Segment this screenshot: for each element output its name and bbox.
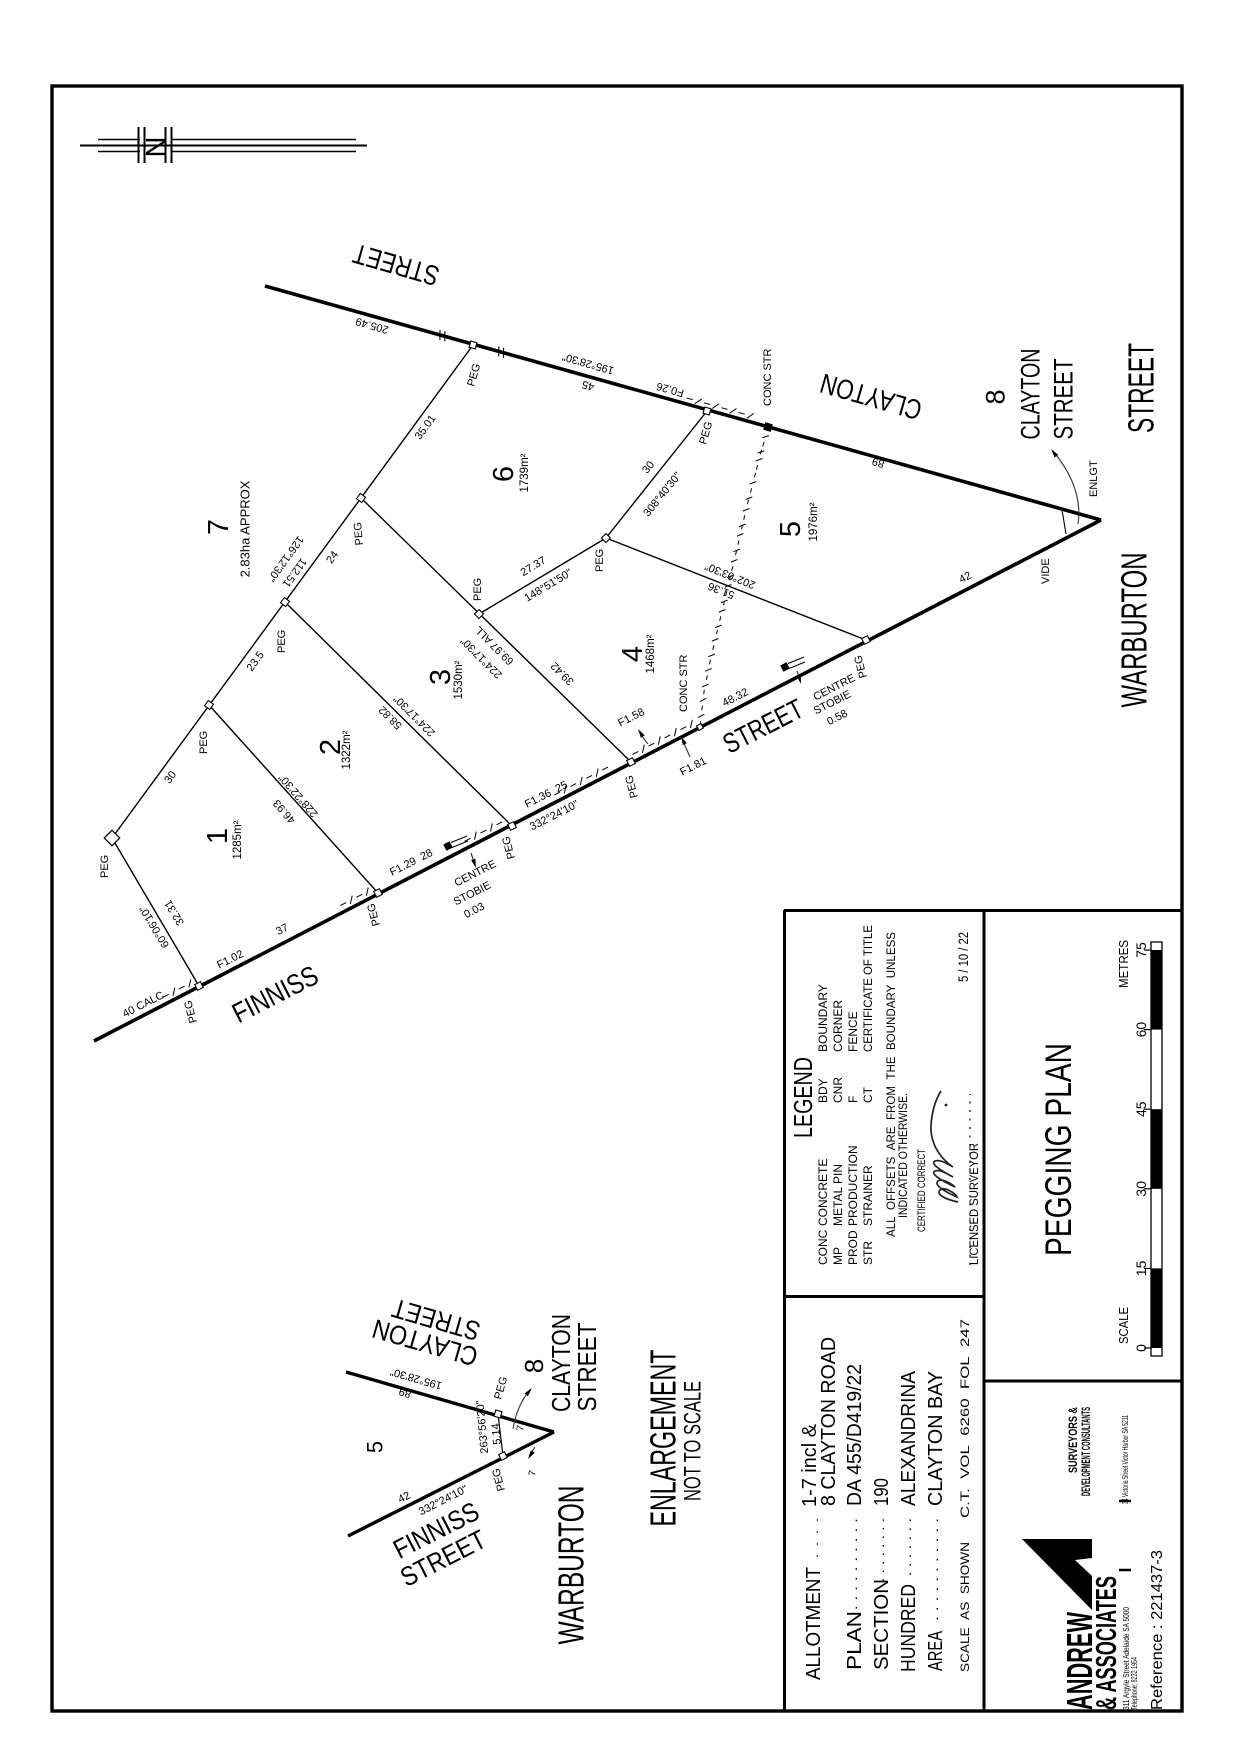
svg-text:30: 30 [1133, 1181, 1149, 1197]
svg-text:5: 5 [363, 1441, 388, 1453]
svg-text:37: 37 [274, 922, 290, 938]
svg-text:BDY: BDY [816, 1078, 830, 1103]
svg-text:ENLARGEMENT: ENLARGEMENT [643, 1349, 684, 1526]
svg-text:SURVEYORS &: SURVEYORS & [1066, 1407, 1080, 1473]
svg-text:1530m²: 1530m² [453, 660, 465, 699]
svg-text:DA 455/D419/22: DA 455/D419/22 [844, 1364, 866, 1506]
svg-text:CERTIFICATE OF TITLE: CERTIFICATE OF TITLE [861, 925, 875, 1052]
svg-text:STREET: STREET [350, 238, 443, 292]
svg-text:ALEXANDRINA: ALEXANDRINA [898, 1370, 920, 1506]
svg-text:BOUNDARY: BOUNDARY [816, 984, 830, 1052]
svg-text:NOT TO SCALE: NOT TO SCALE [679, 1381, 706, 1501]
svg-text:1468m²: 1468m² [645, 634, 657, 673]
svg-text:PEG: PEG [465, 362, 483, 388]
svg-text:15: 15 [1133, 1260, 1149, 1276]
svg-text:. . . .: . . . . [806, 1518, 821, 1558]
svg-text:STREET: STREET [572, 1322, 602, 1411]
svg-text:SCALE AS SHOWN: SCALE AS SHOWN [958, 1542, 972, 1672]
svg-text:. . . . . . . . . . .: . . . . . . . . . . . [845, 1518, 860, 1620]
svg-text:PEG: PEG [852, 654, 870, 680]
svg-text:PEG: PEG [365, 902, 383, 928]
svg-text:39.42: 39.42 [549, 659, 577, 687]
svg-text:STREET: STREET [1121, 343, 1162, 433]
svg-text:6: 6 [488, 466, 520, 482]
svg-text:CORNER: CORNER [831, 1000, 845, 1052]
svg-text:5.14: 5.14 [490, 1423, 504, 1445]
svg-text:CT: CT [861, 1086, 875, 1103]
svg-text:WARBURTON: WARBURTON [1114, 553, 1155, 708]
svg-text:8 CLAYTON ROAD: 8 CLAYTON ROAD [818, 1337, 840, 1506]
svg-text:F1.29 28: F1.29 28 [388, 847, 435, 879]
svg-text:75: 75 [1133, 942, 1149, 958]
svg-text:224°17'30": 224°17'30" [392, 692, 438, 738]
svg-text:30: 30 [162, 769, 179, 786]
svg-text:VIDE: VIDE [1040, 558, 1052, 584]
svg-text:5 / 10 / 22: 5 / 10 / 22 [955, 932, 971, 982]
svg-text:. . . . . . . . . . .: . . . . . . . . . . . [926, 1518, 941, 1621]
svg-text:FINNISS: FINNISS [227, 960, 323, 1029]
svg-text:PEG: PEG [594, 549, 606, 572]
svg-text:F1.58: F1.58 [616, 706, 647, 729]
svg-text:. . . . . . . .: . . . . . . . . [872, 1518, 887, 1582]
svg-text:8: 8 [980, 389, 1010, 404]
svg-text:263°56'20": 263°56'20" [474, 1400, 491, 1454]
svg-text:SECTION: SECTION [871, 1579, 893, 1670]
svg-text:1322m²: 1322m² [341, 730, 353, 769]
svg-text:METRES: METRES [1116, 940, 1131, 988]
svg-text:. . . . . . .: . . . . . . . [899, 1518, 914, 1576]
svg-text:DEVELOPMENT CONSULTANTS: DEVELOPMENT CONSULTANTS [1079, 1407, 1093, 1496]
svg-text:PEG: PEG [99, 855, 111, 878]
svg-text:STR: STR [861, 1241, 875, 1265]
svg-text:AREA: AREA [925, 1631, 947, 1671]
svg-text:CLAYTON: CLAYTON [1015, 349, 1045, 440]
svg-text:2.83ha APPROX: 2.83ha APPROX [238, 480, 253, 577]
svg-text:45: 45 [581, 378, 596, 393]
svg-text:PROD: PROD [846, 1230, 860, 1265]
svg-text:PEG: PEG [500, 835, 518, 861]
svg-text:SCALE: SCALE [1116, 1307, 1131, 1344]
svg-text:CONC STR: CONC STR [762, 349, 774, 407]
svg-text:PEG: PEG [472, 578, 484, 601]
svg-text:45: 45 [1133, 1101, 1149, 1117]
svg-text:HUNDRED: HUNDRED [898, 1584, 920, 1672]
svg-text:1976m²: 1976m² [808, 502, 820, 541]
svg-text:CONC: CONC [816, 1229, 830, 1265]
svg-text:F: F [846, 1096, 860, 1103]
svg-text:7: 7 [527, 1469, 539, 1477]
svg-text:CONCRETE: CONCRETE [816, 1159, 830, 1226]
svg-text:N: N [141, 137, 173, 158]
svg-text:CNR: CNR [831, 1077, 845, 1103]
svg-text:1739m²: 1739m² [519, 453, 531, 492]
svg-text:STRAINER: STRAINER [861, 1165, 875, 1226]
svg-text:PEG: PEG [697, 420, 715, 446]
svg-text:PEG: PEG [352, 522, 366, 546]
svg-text:PRODUCTION: PRODUCTION [846, 1145, 860, 1226]
svg-text:32.31: 32.31 [163, 898, 187, 928]
svg-text:PEG: PEG [276, 630, 288, 653]
svg-text:CONC STR: CONC STR [678, 655, 690, 713]
svg-text:F1.81: F1.81 [678, 755, 709, 778]
svg-text:190: 190 [871, 1478, 893, 1506]
svg-text:0: 0 [1133, 1344, 1149, 1352]
svg-text:F1.02: F1.02 [215, 948, 246, 971]
svg-text:C.T. VOL 6260 FOL 247: C.T. VOL 6260 FOL 247 [958, 1319, 972, 1518]
svg-text:60: 60 [1133, 1022, 1149, 1038]
svg-text:MP: MP [831, 1247, 845, 1265]
svg-text:& ASSOCIATES: & ASSOCIATES [1091, 1576, 1123, 1710]
svg-text:PEG: PEG [623, 774, 641, 800]
svg-text:INDICATED OTHERWISE.: INDICATED OTHERWISE. [896, 1093, 910, 1218]
svg-text:CLAYTON BAY: CLAYTON BAY [925, 1371, 947, 1506]
svg-text:FENCE: FENCE [846, 1011, 860, 1052]
svg-text:LICENSED SURVEYOR: LICENSED SURVEYOR [967, 1143, 981, 1265]
svg-text:CLAYTON: CLAYTON [817, 367, 926, 425]
svg-text:34 Victoria Street Victor Harb: 34 Victoria Street Victor Harbor SA 5211 [1121, 1415, 1130, 1504]
svg-text:308°40'30": 308°40'30" [641, 470, 684, 519]
svg-text:PEG: PEG [490, 1467, 508, 1493]
svg-text:1: 1 [202, 828, 234, 844]
svg-text:5: 5 [775, 521, 807, 537]
svg-text:35.01: 35.01 [413, 413, 439, 442]
svg-text:PEG: PEG [492, 1375, 510, 1401]
svg-text:PEG: PEG [198, 731, 210, 754]
svg-text:ALLOTMENT: ALLOTMENT [803, 1567, 825, 1680]
svg-text:Reference : 221437-3: Reference : 221437-3 [1149, 1550, 1166, 1710]
svg-text:24: 24 [324, 549, 341, 566]
svg-text:Telephone: 8232 1954: Telephone: 8232 1954 [1130, 1657, 1139, 1710]
svg-text:WARBURTON: WARBURTON [551, 1486, 592, 1645]
svg-text:46.93: 46.93 [271, 797, 298, 826]
svg-text:48.32: 48.32 [720, 686, 750, 709]
svg-text:METAL PIN: METAL PIN [831, 1164, 845, 1226]
svg-text:8: 8 [519, 1359, 549, 1373]
svg-text:LEGEND: LEGEND [788, 1057, 818, 1138]
svg-text:PEGGING PLAN: PEGGING PLAN [1038, 1043, 1079, 1256]
svg-text:7: 7 [203, 519, 235, 535]
svg-text:ENLGT: ENLGT [1088, 460, 1100, 497]
svg-text:PEG: PEG [182, 999, 200, 1025]
svg-text:30: 30 [640, 459, 657, 476]
svg-text:CERTIFIED CORRECT: CERTIFIED CORRECT [916, 1149, 928, 1232]
svg-text:1285m²: 1285m² [232, 820, 244, 859]
svg-text:42: 42 [957, 570, 973, 586]
svg-text:STREET: STREET [1048, 359, 1078, 440]
